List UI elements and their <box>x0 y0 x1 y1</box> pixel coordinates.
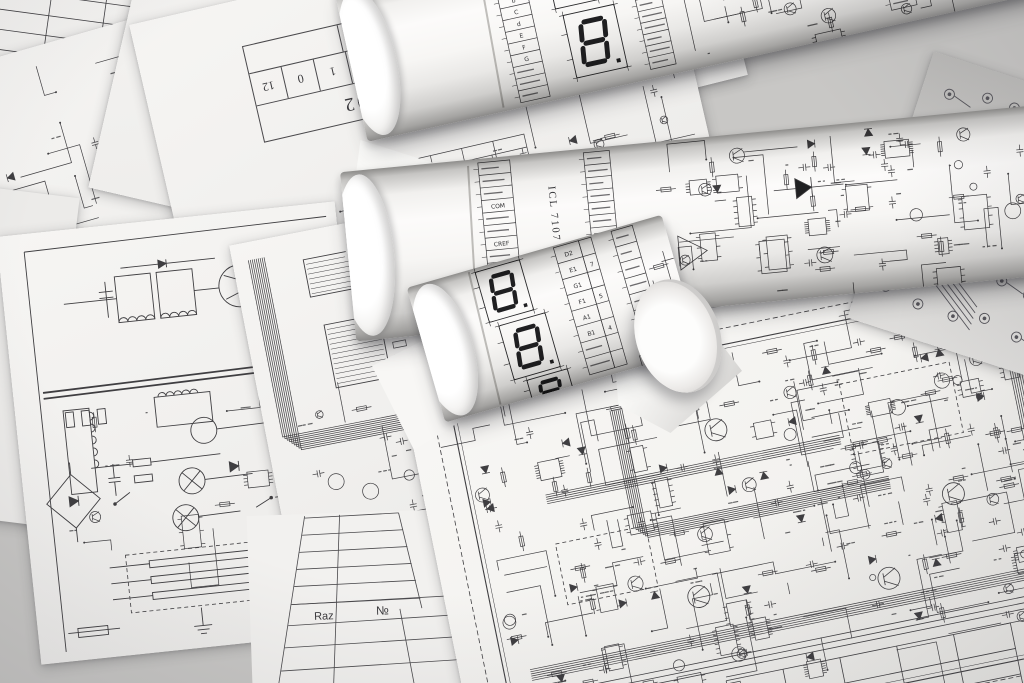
svg-text:C: C <box>513 9 519 17</box>
svg-text:CREF: CREF <box>494 240 511 249</box>
photo-canvas: 520.34f 520.345006.002 Electronic circui… <box>0 0 1024 683</box>
svg-text:b: b <box>511 0 516 5</box>
svg-text:7: 7 <box>589 261 595 269</box>
svg-text:5: 5 <box>598 293 604 301</box>
no-label: № <box>376 603 389 617</box>
svg-text:E: E <box>519 32 524 40</box>
svg-text:D2: D2 <box>564 250 574 259</box>
svg-text:F: F <box>522 44 527 52</box>
format-cell: 12 <box>249 67 288 106</box>
svg-text:E1: E1 <box>569 266 578 275</box>
svg-text:COM: COM <box>491 202 506 210</box>
svg-text:d: d <box>516 21 521 29</box>
svg-text:A1: A1 <box>582 313 592 322</box>
svg-text:G: G <box>524 56 530 64</box>
svg-text:B1: B1 <box>587 329 597 338</box>
svg-text:4: 4 <box>607 324 613 332</box>
svg-text:G1: G1 <box>573 281 583 290</box>
raz-label: Raz <box>314 610 334 623</box>
svg-text:F1: F1 <box>578 297 587 306</box>
